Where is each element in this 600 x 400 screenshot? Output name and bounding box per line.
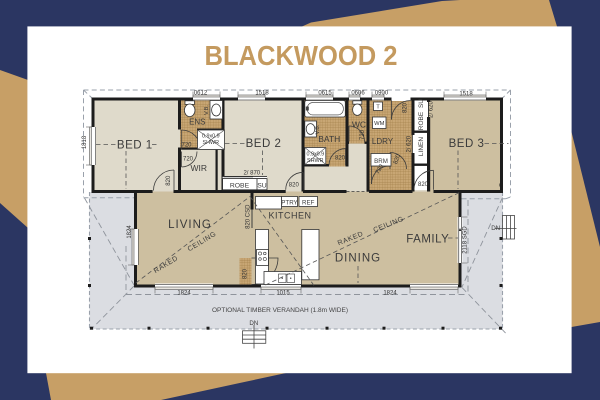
svg-text:DINING: DINING: [335, 253, 381, 265]
svg-text:0615: 0615: [318, 91, 332, 97]
svg-text:DN: DN: [491, 225, 500, 232]
svg-text:0612: 0612: [194, 91, 208, 97]
svg-text:LINEN: LINEN: [418, 137, 425, 156]
svg-text:820: 820: [243, 268, 249, 279]
svg-text:1824: 1824: [177, 291, 191, 297]
svg-text:820: 820: [403, 102, 409, 113]
svg-text:820 CSD: 820 CSD: [246, 204, 252, 229]
svg-text:KITCHEN: KITCHEN: [268, 211, 311, 221]
svg-text:1818: 1818: [82, 135, 88, 149]
svg-text:1518: 1518: [459, 92, 473, 98]
svg-text:PTRY: PTRY: [281, 199, 297, 206]
svg-text:720: 720: [183, 157, 194, 163]
svg-text:ROBE: ROBE: [418, 111, 425, 130]
svg-text:820: 820: [335, 155, 346, 161]
svg-text:T: T: [376, 105, 380, 111]
svg-text:BED 1: BED 1: [117, 140, 153, 152]
svg-text:2/ 620: 2/ 620: [407, 135, 413, 152]
svg-text:BED 3: BED 3: [449, 138, 485, 150]
svg-text:SU: SU: [418, 99, 425, 108]
svg-text:720: 720: [360, 129, 366, 140]
svg-text:SHWR: SHWR: [203, 140, 220, 146]
svg-text:ROBE: ROBE: [230, 182, 250, 189]
svg-text:ENS: ENS: [189, 118, 205, 127]
svg-text:SHWR: SHWR: [307, 158, 324, 164]
svg-text:WM: WM: [374, 121, 384, 127]
svg-text:820: 820: [418, 182, 429, 188]
svg-text:0.9x0.9: 0.9x0.9: [202, 134, 220, 140]
svg-text:BATH: BATH: [318, 134, 340, 144]
svg-text:REF: REF: [302, 199, 315, 206]
svg-text:2118 SGD: 2118 SGD: [463, 226, 469, 254]
svg-text:FAMILY: FAMILY: [406, 234, 449, 246]
svg-text:LIVING: LIVING: [168, 219, 212, 231]
svg-text:1015: 1015: [276, 291, 290, 297]
svg-text:BED 2: BED 2: [246, 138, 282, 150]
svg-text:BRM: BRM: [374, 158, 388, 165]
svg-text:DN: DN: [249, 320, 258, 327]
svg-text:1518: 1518: [255, 91, 269, 97]
svg-text:1824: 1824: [383, 291, 397, 297]
svg-text:SU: SU: [257, 182, 267, 189]
svg-text:WIR: WIR: [191, 163, 208, 173]
svg-text:WC: WC: [352, 120, 366, 130]
svg-text:0606: 0606: [351, 91, 365, 97]
svg-text:V.B.: V.B.: [204, 105, 210, 115]
svg-text:OPTIONAL TIMBER VERANDAH (1.8m: OPTIONAL TIMBER VERANDAH (1.8m WIDE): [212, 307, 348, 314]
svg-text:BLACKWOOD 2: BLACKWOOD 2: [205, 40, 398, 71]
svg-text:820: 820: [289, 183, 300, 189]
svg-text:720: 720: [181, 143, 192, 149]
svg-text:0.9x0.9: 0.9x0.9: [306, 152, 324, 158]
svg-text:2/ 620: 2/ 620: [429, 100, 435, 117]
svg-text:820: 820: [166, 175, 172, 186]
svg-text:V.B.: V.B.: [315, 125, 321, 135]
svg-text:2/ 870: 2/ 870: [243, 171, 260, 177]
svg-text:1824: 1824: [127, 225, 133, 239]
svg-text:0900: 0900: [375, 91, 389, 97]
svg-text:LDRY: LDRY: [372, 137, 394, 146]
